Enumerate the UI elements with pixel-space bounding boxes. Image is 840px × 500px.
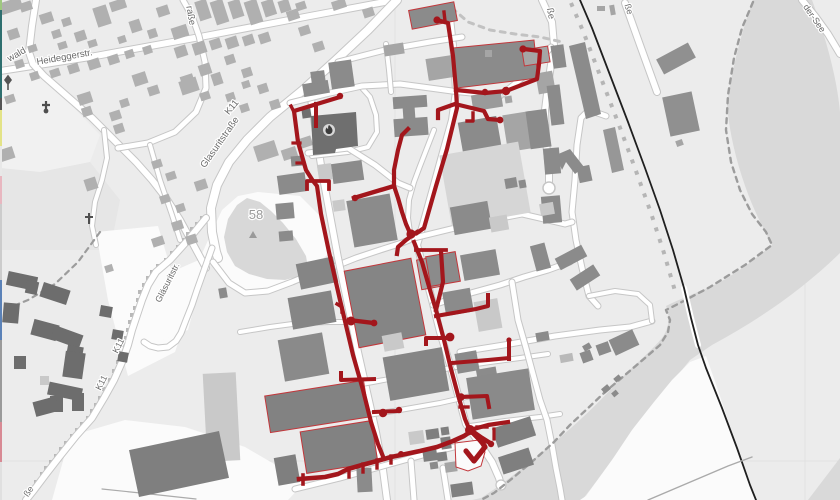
svg-text:ße: ße	[544, 7, 557, 20]
svg-text:58: 58	[249, 207, 263, 222]
